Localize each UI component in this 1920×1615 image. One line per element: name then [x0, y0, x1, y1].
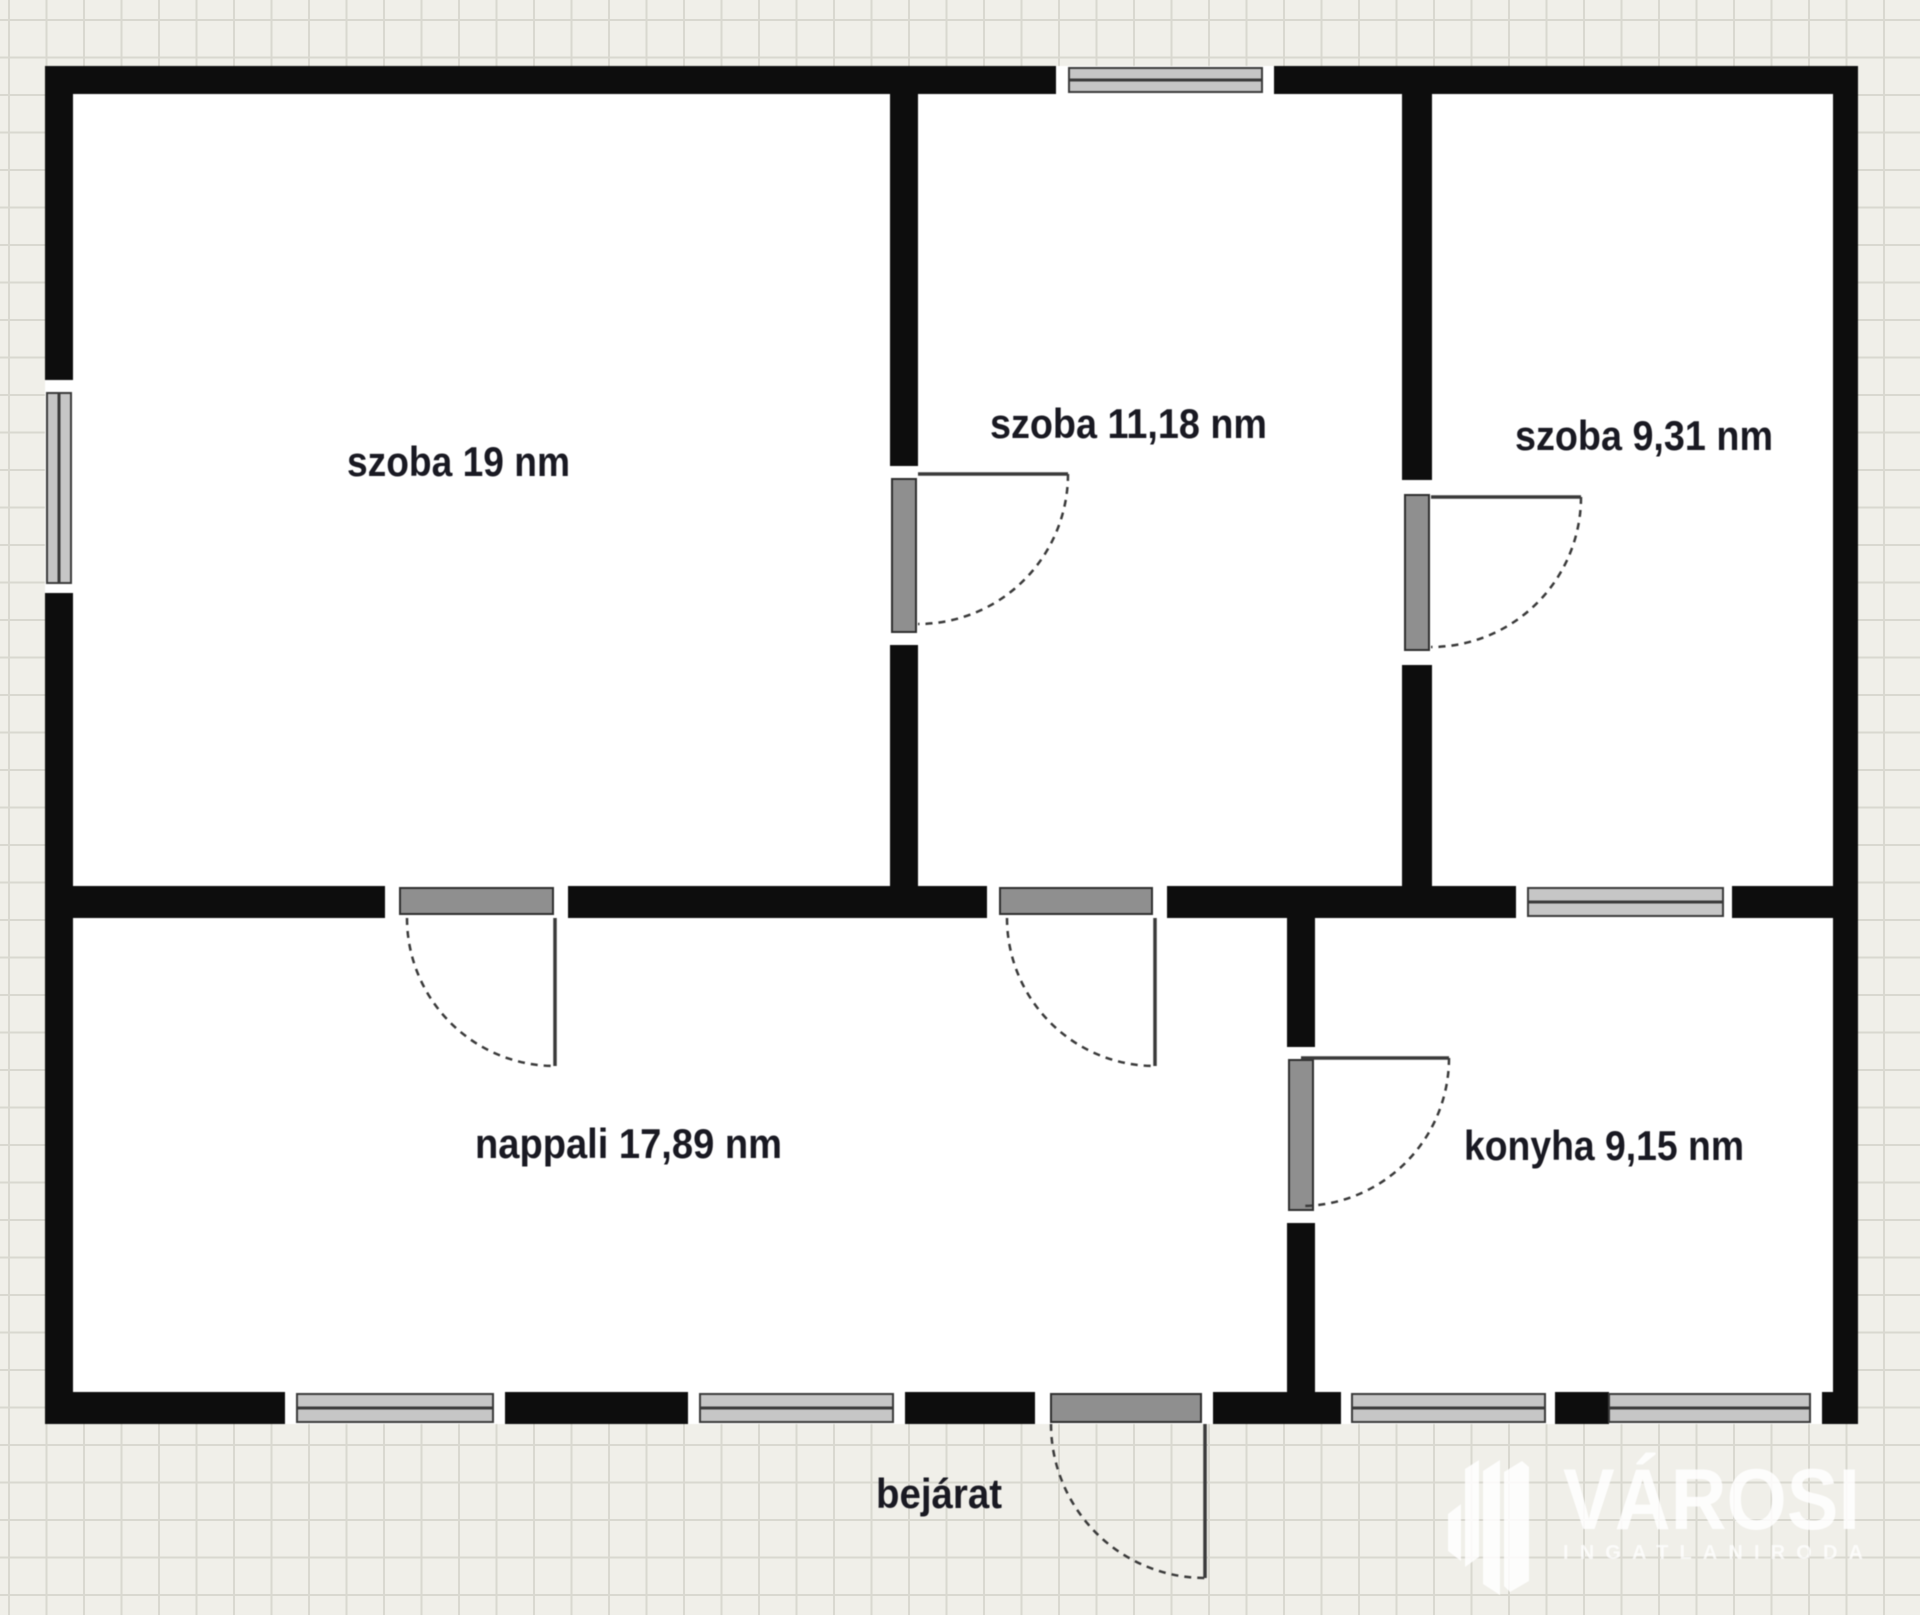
wall-segment: [1287, 918, 1315, 1047]
wall-segment: [905, 1392, 1035, 1424]
room-label: szoba 9,31 nm: [1515, 412, 1773, 459]
watermark-logo-icon: [1465, 1460, 1479, 1567]
wall-segment: [890, 94, 918, 466]
opening-cap: [1516, 886, 1528, 918]
watermark-logo-icon: [1504, 1461, 1529, 1592]
opening-cap: [45, 583, 73, 593]
room-label: nappali 17,89 nm: [475, 1120, 782, 1167]
door-leaf: [1000, 888, 1152, 914]
wall-segment: [568, 886, 987, 918]
wall-segment: [45, 593, 73, 1424]
wall-segment: [505, 1392, 688, 1424]
opening-cap: [1723, 886, 1732, 918]
door-leaf: [1289, 1060, 1313, 1210]
opening-cap: [553, 886, 568, 918]
opening-cap: [1810, 1392, 1822, 1424]
door-swing-arc: [1051, 1424, 1205, 1578]
opening-cap: [1341, 1392, 1352, 1424]
opening-cap: [1056, 66, 1069, 94]
opening-cap: [1035, 1392, 1051, 1424]
opening-cap: [493, 1392, 505, 1424]
opening-cap: [1201, 1392, 1213, 1424]
room-label: konyha 9,15 nm: [1464, 1122, 1744, 1169]
door-leaf: [892, 479, 916, 632]
watermark-logo-icon: [1448, 1504, 1461, 1561]
wall-segment: [45, 66, 73, 380]
wall-segment: [1287, 1223, 1315, 1392]
opening-cap: [890, 466, 918, 479]
door-leaf: [400, 888, 553, 914]
wall-segment: [1213, 1392, 1341, 1424]
opening-cap: [890, 632, 918, 645]
wall-segment: [1555, 1392, 1609, 1424]
room-label: szoba 11,18 nm: [990, 400, 1267, 447]
wall-segment: [1274, 66, 1858, 94]
watermark-brand: VÁROSI: [1563, 1452, 1860, 1548]
floorplan-canvas: szoba 19 nmszoba 11,18 nmszoba 9,31 nmna…: [0, 0, 1920, 1615]
wall-segment: [890, 645, 918, 886]
opening-cap: [987, 886, 1000, 918]
opening-cap: [1402, 650, 1432, 665]
wall-segment: [45, 1392, 285, 1424]
opening-cap: [688, 1392, 700, 1424]
wall-segment: [1402, 94, 1432, 480]
opening-cap: [1262, 66, 1274, 94]
opening-cap: [45, 380, 73, 393]
opening-cap: [385, 886, 400, 918]
wall-segment: [45, 66, 1056, 94]
wall-segment: [73, 886, 385, 918]
room-label: szoba 19 nm: [347, 438, 570, 485]
wall-segment: [1822, 1392, 1858, 1424]
opening-cap: [893, 1392, 905, 1424]
opening-cap: [1152, 886, 1167, 918]
door-leaf: [1051, 1394, 1201, 1422]
floorplan-drawing: szoba 19 nmszoba 11,18 nmszoba 9,31 nmna…: [0, 0, 1920, 1615]
opening-cap: [285, 1392, 297, 1424]
wall-segment: [1402, 665, 1432, 886]
plan-interior: [45, 66, 1858, 1424]
wall-segment: [1167, 886, 1516, 918]
room-label: bejárat: [876, 1470, 1002, 1517]
opening-cap: [1402, 480, 1432, 495]
opening-cap: [1287, 1210, 1315, 1223]
watermark-logo-icon: [1483, 1460, 1500, 1595]
wall-segment: [1732, 886, 1833, 918]
opening-cap: [1545, 1392, 1555, 1424]
wall-segment: [1833, 66, 1858, 1424]
door-leaf: [1405, 495, 1429, 650]
